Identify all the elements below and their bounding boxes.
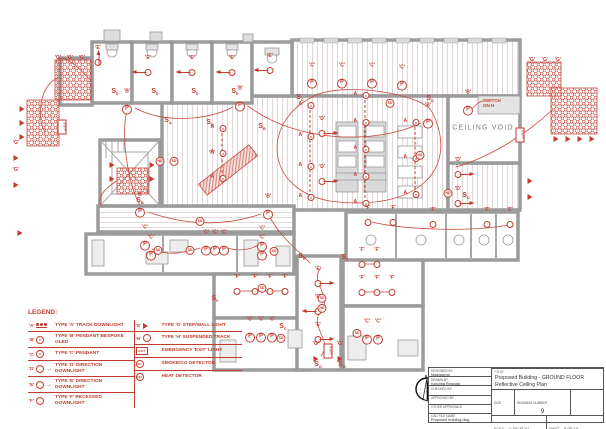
recessed-downlight-symbol: 'F' bbox=[374, 256, 381, 272]
legend-item: HD HEAT DETECTOR bbox=[135, 371, 243, 383]
pendant-light-symbol: 'C'P bbox=[307, 72, 317, 89]
light-type-label: 'G' bbox=[529, 49, 535, 65]
track-downlight-symbol: AAAA bbox=[310, 105, 311, 197]
pendant-light-symbol: 'B'P bbox=[122, 98, 132, 115]
drawn-by-value: Karolina Regnala bbox=[431, 382, 489, 386]
detector-symbol: HD bbox=[318, 297, 327, 313]
switch-symbol: SB bbox=[136, 197, 144, 205]
title-label: TITLE bbox=[495, 370, 600, 374]
recessed-downlight-symbol: 'F' bbox=[389, 284, 396, 300]
recessed-downlight-symbol: 'F' bbox=[359, 284, 366, 300]
pendant-light-symbol: 'C'P bbox=[362, 328, 372, 345]
switch-symbol: SE bbox=[191, 88, 198, 96]
legend-left-column: 'A' TYPE 'A' TRACK DOWNLIGHT'B'P TYPE 'B… bbox=[28, 320, 134, 408]
detector-symbol: SD bbox=[196, 210, 205, 226]
detector-symbol: SD bbox=[386, 92, 395, 108]
recessed-downlight-symbol: 'F' bbox=[267, 283, 274, 299]
light-type-label: 'G' bbox=[55, 47, 61, 63]
direction-downlight-symbol: 'E' bbox=[189, 64, 196, 80]
legend-item: 'G' TYPE 'G' STEP/WALL LIGHT bbox=[135, 320, 243, 332]
track-downlight-symbol: AAAAA bbox=[365, 95, 366, 203]
pendant-light-symbol: 'B'P bbox=[263, 203, 273, 220]
heat-detector-icon: HD bbox=[136, 373, 162, 381]
switch-symbol: SC bbox=[279, 323, 287, 331]
detector-symbol: HD bbox=[444, 182, 453, 198]
switch-note: SWITCHON H bbox=[483, 99, 501, 108]
recessed-downlight-symbol: 'F' bbox=[365, 214, 372, 230]
legend-item: SD SMOKE/CO DETECTOR bbox=[135, 358, 243, 371]
other-approvals-label: OTHER APPROVALS bbox=[431, 405, 489, 409]
legend-item: 'B'P TYPE 'B' PENDANT BESPOKE OLED bbox=[28, 332, 134, 348]
detector-symbol: SD bbox=[186, 239, 195, 255]
step-wall-light-symbol: 'G' bbox=[14, 149, 19, 165]
exit-light-symbol: EXIT bbox=[516, 128, 525, 147]
recessed-downlight-symbol: 'F' bbox=[390, 214, 397, 230]
switch-symbol: SE bbox=[111, 88, 118, 96]
suspended-track-icon: 'H'• bbox=[136, 334, 162, 342]
approved-by-label: APPROVED BY bbox=[431, 396, 489, 400]
light-type-label: 'G' bbox=[555, 49, 561, 65]
switch-symbol: SH bbox=[206, 119, 214, 127]
recessed-downlight-icon: 'F' bbox=[29, 397, 55, 405]
step-wall-light-symbol bbox=[150, 170, 155, 186]
step-wall-light-symbol bbox=[554, 130, 559, 146]
step-wall-light-symbol bbox=[578, 130, 583, 146]
direction-downlight-icon: 'E'→ bbox=[29, 381, 55, 389]
legend-item: EXIT EMERGENCY 'EXIT' LIGHT bbox=[135, 345, 243, 358]
direction-downlight-symbol: 'D' bbox=[455, 195, 462, 211]
recessed-downlight-symbol: 'F' bbox=[374, 284, 381, 300]
detector-symbol: SD bbox=[258, 277, 267, 293]
exit-light-icon: EXIT bbox=[136, 347, 162, 355]
switch-symbol: SA bbox=[164, 117, 172, 125]
pendant-light-symbol: 'C'P bbox=[256, 326, 266, 343]
step-wall-light-symbol bbox=[566, 130, 571, 146]
light-type-label: 'G' bbox=[67, 47, 73, 63]
direction-downlight-symbol: 'E' bbox=[229, 64, 236, 80]
recessed-downlight-symbol: 'F' bbox=[359, 256, 366, 272]
exit-light-symbol: EXIT bbox=[58, 120, 67, 139]
legend-right-column: 'G' TYPE 'G' STEP/WALL LIGHT'H'• TYPE 'H… bbox=[134, 320, 243, 408]
switch-symbol: SE bbox=[151, 88, 158, 96]
step-wall-light-symbol: 'G' bbox=[14, 176, 19, 192]
checked-by-label: CHECKED BY bbox=[431, 387, 489, 391]
legend-item: 'H'• TYPE 'H' SUSPENDED TRACK bbox=[135, 332, 243, 345]
pendant-light-symbol: 'C'P bbox=[367, 72, 377, 89]
switch-symbol: SD bbox=[426, 95, 434, 103]
direction-downlight-symbol: 'E' bbox=[145, 64, 152, 80]
legend-item: 'F' TYPE 'F' RECESSED DOWNLIGHT bbox=[28, 393, 134, 408]
pendant-light-symbol: 'C'P bbox=[373, 328, 383, 345]
switch-symbol: SE bbox=[298, 253, 305, 261]
step-wall-light-icon: 'G' bbox=[136, 323, 162, 329]
detector-symbol: SD bbox=[353, 322, 362, 338]
direction-downlight-symbol: 'E' bbox=[95, 54, 102, 70]
pendant-light-symbol: 'B'P bbox=[463, 99, 473, 116]
detector-symbol: SD bbox=[270, 240, 279, 256]
light-type-label: 'G' bbox=[79, 47, 85, 63]
drawing-number-value: 9 bbox=[517, 409, 568, 415]
title-line2: Reflective Ceiling Plan bbox=[495, 382, 600, 388]
step-wall-light-symbol bbox=[590, 130, 595, 146]
pendant-light-symbol: 'C'P bbox=[219, 239, 229, 256]
light-type-label: 'H' bbox=[209, 142, 215, 158]
reflective-ceiling-plan-sheet: 'E''E''E''E''E''D''D''D''D''E''E''E''C'P… bbox=[0, 0, 606, 429]
detector-symbol: SD bbox=[154, 239, 163, 255]
pendant-icon: 'B'P bbox=[29, 336, 55, 344]
title-line1: Proposed Building - GROUND FLOOR bbox=[495, 375, 600, 381]
exit-light-symbol: EXIT bbox=[324, 344, 333, 363]
step-wall-light-symbol bbox=[18, 224, 23, 240]
switch-symbol: SD bbox=[462, 192, 470, 200]
detector-symbol: SD bbox=[170, 150, 179, 166]
direction-downlight-icon: 'D'→ bbox=[29, 365, 55, 373]
direction-downlight-symbol: 'D' bbox=[319, 125, 326, 141]
track-downlight-icon: 'A' bbox=[29, 323, 55, 328]
pendant-light-symbol: 'C'P bbox=[267, 326, 277, 343]
light-type-label: 'G' bbox=[542, 49, 548, 65]
pendant-light-symbol: 'B'P bbox=[423, 112, 433, 129]
smoke-detector-icon: SD bbox=[136, 360, 162, 368]
pendant-light-symbol: 'C'P bbox=[257, 244, 267, 261]
cad-file-value: Proposed building.dwg bbox=[431, 418, 489, 422]
recessed-downlight-symbol: 'F' bbox=[282, 283, 289, 299]
recessed-downlight-symbol: 'F' bbox=[430, 216, 437, 232]
step-wall-light-symbol bbox=[20, 128, 25, 144]
detector-symbol: HD bbox=[156, 150, 165, 166]
direction-downlight-symbol: 'D' bbox=[319, 173, 326, 189]
switch-symbol: SB bbox=[258, 123, 266, 131]
legend-item: 'E'→ TYPE 'E' DIRECTION DOWNLIGHT bbox=[28, 377, 134, 393]
size-label: SIZE bbox=[494, 401, 501, 405]
recessed-downlight-symbol: 'F' bbox=[234, 283, 241, 299]
detector-symbol: HD bbox=[416, 144, 425, 160]
switch-symbol: SE bbox=[231, 88, 238, 96]
ceiling-void-label: CEILING VOID bbox=[452, 125, 513, 132]
legend-item: 'A' TYPE 'A' TRACK DOWNLIGHT bbox=[28, 320, 134, 332]
designed-by-value: Magdalena bbox=[431, 373, 489, 377]
track-downlight-symbol: AAA bbox=[222, 128, 223, 178]
switch-symbol: SC bbox=[296, 94, 304, 102]
step-wall-light-symbol bbox=[528, 188, 533, 204]
switch-symbol: SF bbox=[211, 295, 218, 303]
pendant-light-symbol: 'C'P bbox=[397, 74, 407, 91]
switch-symbol: SG bbox=[314, 361, 322, 369]
direction-downlight-symbol: 'D' bbox=[455, 166, 462, 182]
step-wall-light-symbol bbox=[528, 172, 533, 188]
step-wall-light-symbol bbox=[110, 170, 115, 186]
pendant-light-symbol: 'B'P bbox=[235, 95, 245, 112]
drawing-title: TITLE Proposed Building - GROUND FLOOR R… bbox=[492, 369, 603, 390]
switch-symbol: SF bbox=[341, 254, 348, 262]
direction-downlight-symbol: 'E' bbox=[267, 62, 274, 78]
title-block-approvals: DESIGNED BYMagdalena DRAWN BYKarolina Re… bbox=[429, 368, 492, 422]
pendant-light-symbol: 'C'P bbox=[337, 72, 347, 89]
recessed-downlight-symbol: 'F' bbox=[507, 216, 514, 232]
switch-symbol: SG bbox=[338, 361, 346, 369]
title-block: DESIGNED BYMagdalena DRAWN BYKarolina Re… bbox=[428, 367, 604, 423]
legend-item: 'D'→ TYPE 'D' DIRECTION DOWNLIGHT bbox=[28, 361, 134, 377]
recessed-downlight-symbol: 'F' bbox=[484, 216, 491, 232]
pendant-icon: 'C'P bbox=[29, 350, 55, 358]
legend-title: LEGEND: bbox=[28, 309, 242, 316]
legend-item: 'C'P TYPE 'C' PENDANT bbox=[28, 348, 134, 361]
drawing-number-label: DRAWING NUMBER bbox=[517, 401, 547, 405]
legend: LEGEND: 'A' TYPE 'A' TRACK DOWNLIGHT'B'P… bbox=[28, 309, 242, 408]
pendant-light-symbol: 'C'P bbox=[245, 326, 255, 343]
